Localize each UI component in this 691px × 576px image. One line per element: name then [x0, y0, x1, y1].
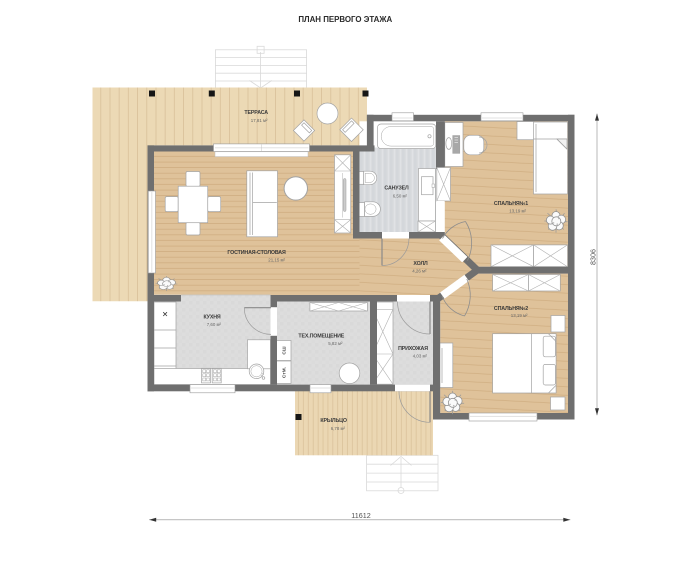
- svg-text:21,15 м²: 21,15 м²: [268, 257, 285, 262]
- svg-text:КУХНЯ: КУХНЯ: [203, 315, 220, 321]
- svg-text:13,19 м²: 13,19 м²: [511, 313, 528, 318]
- svg-text:17,81 м²: 17,81 м²: [251, 118, 268, 123]
- svg-text:ТЕХ.ПОМЕЩЕНИЕ: ТЕХ.ПОМЕЩЕНИЕ: [298, 334, 344, 340]
- svg-text:6,50 м²: 6,50 м²: [393, 193, 408, 198]
- svg-text:ХОЛЛ: ХОЛЛ: [413, 261, 428, 267]
- svg-text:5,82 м²: 5,82 м²: [328, 341, 343, 346]
- svg-text:СПАЛЬНЯ№2: СПАЛЬНЯ№2: [494, 306, 528, 312]
- svg-text:7,60 м²: 7,60 м²: [207, 322, 222, 327]
- svg-text:6,78 м²: 6,78 м²: [331, 426, 346, 431]
- svg-text:СШ: СШ: [282, 346, 288, 354]
- svg-text:8306: 8306: [588, 249, 597, 265]
- svg-text:СПАЛЬНЯ№1: СПАЛЬНЯ№1: [494, 201, 528, 207]
- svg-text:ПРИХОЖАЯ: ПРИХОЖАЯ: [398, 346, 428, 352]
- svg-text:СтМ.: СтМ.: [282, 367, 288, 378]
- svg-text:КРЫЛЬЦО: КРЫЛЬЦО: [320, 418, 346, 424]
- svg-text:САНУЗЕЛ: САНУЗЕЛ: [384, 186, 409, 192]
- svg-text:4,26 м²: 4,26 м²: [412, 269, 427, 274]
- svg-text:11612: 11612: [351, 511, 370, 520]
- svg-text:4,03 м²: 4,03 м²: [413, 353, 428, 358]
- svg-text:13,19 м²: 13,19 м²: [509, 209, 526, 214]
- svg-text:ПЛАН ПЕРВОГО ЭТАЖА: ПЛАН ПЕРВОГО ЭТАЖА: [298, 15, 392, 24]
- svg-text:ТЕРРАСА: ТЕРРАСА: [244, 110, 268, 116]
- svg-text:ГОСТИНАЯ-СТОЛОВАЯ: ГОСТИНАЯ-СТОЛОВАЯ: [227, 250, 286, 256]
